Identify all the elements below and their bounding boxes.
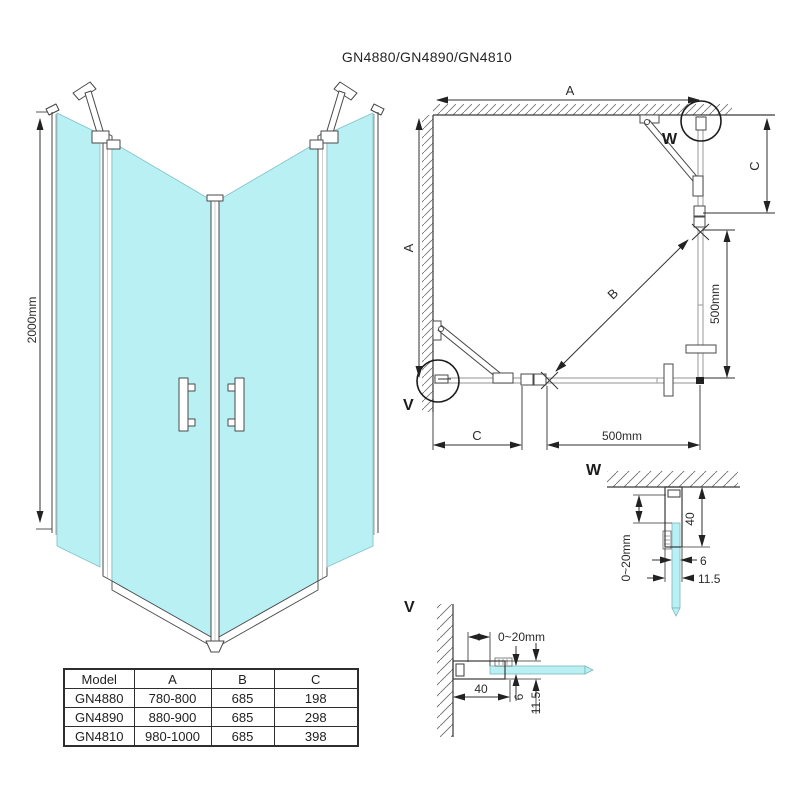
plan-dim-a-left: A [401, 243, 416, 252]
plan-bottom-door-handle [664, 364, 673, 396]
plan-left-support-bar [433, 321, 513, 383]
detail-callout-v-label: V [403, 397, 414, 414]
detail-w-dimensions [633, 488, 710, 582]
detail-v-wall-hatch [437, 604, 453, 737]
col-header-b: B [211, 669, 274, 689]
detail-v-dim-adjust: 0~20mm [498, 630, 545, 644]
iso-center-post-cap [207, 195, 223, 201]
col-header-a: A [134, 669, 211, 689]
page-title: GN4880/GN4890/GN4810 [342, 49, 512, 65]
plan-bottom-hinge [521, 372, 558, 389]
plan-dimensions [419, 100, 775, 450]
plan-top-support-bar [640, 115, 703, 196]
table-row: GN4880 780-800 685 198 [64, 689, 358, 708]
plan-right-door-handle [686, 345, 716, 353]
plan-dim-c-bottom: C [472, 428, 481, 443]
detail-v-dim-glass: 6 [512, 693, 526, 700]
plan-corner-joint [696, 377, 704, 384]
cell-c: 198 [274, 689, 358, 708]
plan-dim-500-bottom: 500mm [602, 429, 642, 443]
cell-a: 780-800 [134, 689, 211, 708]
detail-w-label: W [586, 462, 602, 479]
detail-w-dim-width: 11.5 [698, 572, 721, 586]
cell-c: 298 [274, 708, 358, 727]
detail-w-dim-adjust: 0~20mm [619, 534, 633, 581]
table-header-row: Model A B C [64, 669, 358, 689]
plan-left-wall-hatch [422, 115, 433, 412]
cell-c: 398 [274, 727, 358, 747]
detail-v-view: V 0~20mm 40 6 [404, 599, 593, 737]
table-row: GN4890 880-900 685 298 [64, 708, 358, 727]
cell-b: 685 [211, 689, 274, 708]
iso-height-dimension: 2000mm [25, 112, 52, 529]
iso-center-post-foot [206, 641, 224, 652]
plan-dim-500-right: 500mm [708, 284, 722, 324]
iso-left-door [112, 142, 211, 637]
detail-w-clamp-screw [663, 531, 671, 549]
cell-model: GN4880 [64, 689, 134, 708]
cell-a: 980-1000 [134, 727, 211, 747]
detail-v-glass [490, 666, 585, 674]
detail-v-clamp-screw [495, 658, 512, 666]
plan-view: W V A A C 500mm B C 500mm [401, 83, 775, 450]
col-header-model: Model [64, 669, 134, 689]
iso-height-label: 2000mm [25, 297, 39, 344]
cell-model: GN4890 [64, 708, 134, 727]
cell-a: 880-900 [134, 708, 211, 727]
detail-callout-w-label: W [662, 131, 678, 148]
plan-dim-b: B [604, 285, 621, 302]
detail-v-dim-depth: 40 [474, 682, 488, 696]
plan-top-wall-profile [696, 117, 706, 130]
iso-left-fixed-panel [57, 113, 100, 567]
detail-w-wall-hatch [607, 471, 738, 487]
technical-drawing-page: GN4880/GN4890/GN4810 2000mm [0, 0, 800, 800]
plan-dim-c-right: C [747, 161, 762, 170]
plan-right-glass [698, 115, 703, 377]
iso-right-fixed-panel [327, 113, 373, 567]
cell-model: GN4810 [64, 727, 134, 747]
plan-right-hinge [692, 206, 709, 240]
col-header-c: C [274, 669, 358, 689]
detail-v-dim-width: 11.5 [529, 691, 543, 714]
iso-view: 2000mm [25, 82, 384, 652]
detail-w-dim-depth: 40 [683, 512, 697, 526]
cell-b: 685 [211, 727, 274, 747]
detail-w-dim-glass: 6 [700, 554, 707, 568]
detail-w-glass [672, 523, 680, 608]
detail-w-view: W 0~20mm 40 6 11.5 [586, 462, 740, 616]
model-spec-table: Model A B C GN4880 780-800 685 198 GN489… [63, 668, 359, 747]
plan-bottom-glass [433, 378, 697, 383]
detail-v-label: V [404, 599, 415, 616]
plan-dim-a-top: A [566, 83, 575, 98]
table-row: GN4810 980-1000 685 398 [64, 727, 358, 747]
cell-b: 685 [211, 708, 274, 727]
